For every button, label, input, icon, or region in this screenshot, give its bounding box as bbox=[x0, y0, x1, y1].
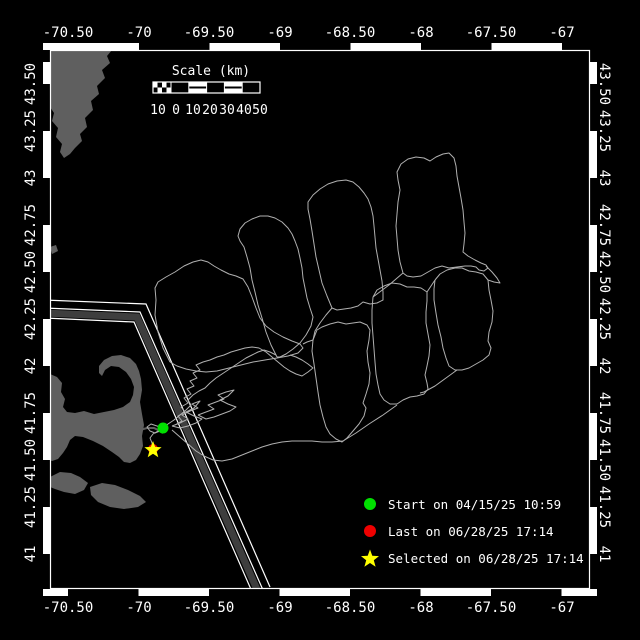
scale-bar-label-3: 20 bbox=[202, 103, 218, 118]
scale-bar-label-4: 30 bbox=[219, 103, 235, 118]
scale-bar-label-0: 10 bbox=[150, 103, 166, 118]
legend-start-label: Start on 04/15/25 10:59 bbox=[388, 497, 561, 512]
legend-row-start: Start on 04/15/25 10:59 bbox=[360, 496, 584, 512]
start-marker-icon bbox=[360, 494, 380, 514]
legend-row-last: Last on 06/28/25 17:14 bbox=[360, 523, 584, 539]
track-map-window: -70.50-70-69.50-69-68.50-68-67.50-67-70.… bbox=[0, 0, 640, 640]
legend-selected-label: Selected on 06/28/25 17:14 bbox=[388, 551, 584, 566]
legend-last-label: Last on 06/28/25 17:14 bbox=[388, 524, 554, 539]
legend: Start on 04/15/25 10:59 Last on 06/28/25… bbox=[360, 496, 584, 577]
last-marker-icon bbox=[360, 521, 380, 541]
selected-marker-icon bbox=[360, 548, 380, 568]
scale-bar-label-5: 40 bbox=[236, 103, 252, 118]
scale-bar-label-6: 50 bbox=[252, 103, 268, 118]
scale-bar-label-1: 0 bbox=[172, 103, 180, 118]
legend-row-selected: Selected on 06/28/25 17:14 bbox=[360, 550, 584, 566]
scale-bar-label-2: 10 bbox=[185, 103, 201, 118]
